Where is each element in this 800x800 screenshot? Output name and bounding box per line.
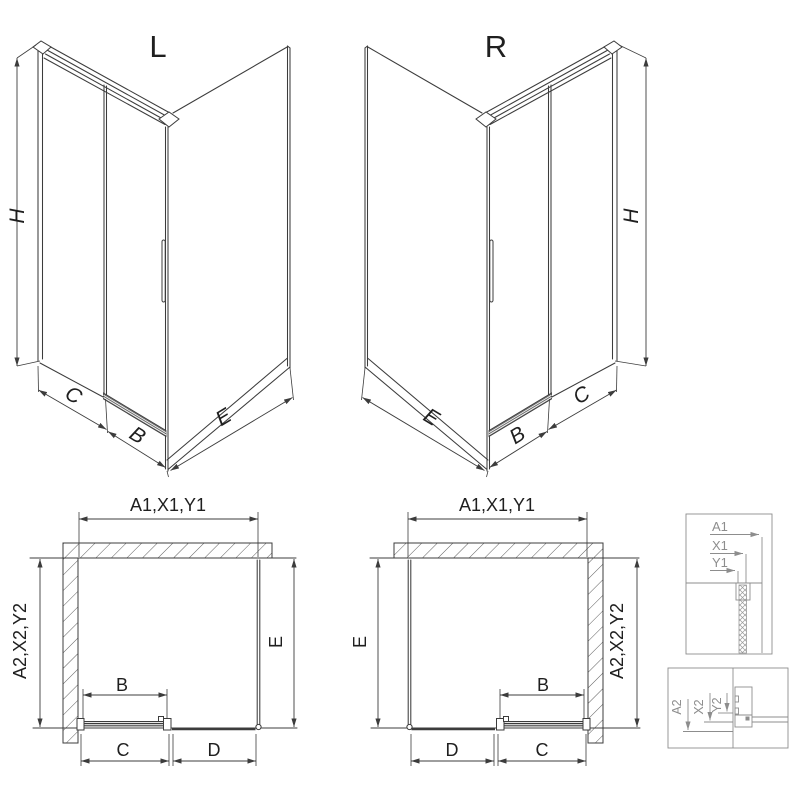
dim-label-b: B <box>537 675 549 695</box>
wall-side-edge <box>613 51 618 361</box>
door-handle <box>162 240 165 302</box>
dim-c-right: C <box>548 366 618 433</box>
dim-e-left: E <box>171 368 294 471</box>
wall-top <box>394 543 603 558</box>
dim-h-left: H <box>6 45 40 366</box>
profile-notch <box>735 696 739 702</box>
detail-box-bottom: A2 X2 Y2 <box>668 668 788 748</box>
glass-edge-section <box>739 585 747 653</box>
rail-end-cap <box>604 41 622 54</box>
detail-label-y2: Y2 <box>710 697 724 712</box>
dim-d: D <box>173 734 256 766</box>
dim-e-right: E <box>362 368 485 471</box>
dim-e-right-side: E <box>266 559 294 727</box>
dim-label-e: E <box>212 403 237 430</box>
roller-detail <box>746 717 750 721</box>
plan-view-right: A1,X1,Y1 E A2,X2,Y2 <box>350 495 640 766</box>
iso-view-left: L <box>6 29 294 477</box>
side-glass-panel <box>407 560 412 730</box>
plan-view-left: A1,X1,Y1 A2,X2,Y2 E <box>10 495 297 766</box>
corner-connector <box>256 724 261 729</box>
side-panel <box>365 46 488 470</box>
dim-label-a1x1y1: A1,X1,Y1 <box>130 495 206 515</box>
dim-label-b: B <box>116 675 128 695</box>
detail-label-a1: A1 <box>712 519 728 534</box>
wall-side-edge <box>38 51 43 361</box>
dim-label-c: C <box>536 740 549 760</box>
view-label-right: R <box>485 29 507 64</box>
dim-b: B <box>83 675 167 719</box>
wall-top <box>63 543 272 558</box>
detail-frame <box>668 668 788 748</box>
floor-profile-section <box>735 687 752 727</box>
corner-connector <box>407 724 412 729</box>
dim-a2-right: A2,X2,Y2 <box>607 559 637 727</box>
dim-label-a2x2y2: A2,X2,Y2 <box>10 603 30 679</box>
dim-label-a2x2y2: A2,X2,Y2 <box>607 603 627 679</box>
wall-left <box>63 558 78 743</box>
dim-label-e: E <box>350 636 370 648</box>
dim-c-left: C <box>38 366 108 433</box>
technical-drawing-page: L <box>0 0 800 800</box>
corner-post <box>166 127 169 471</box>
dim-b: B <box>500 675 584 719</box>
door-divider-edge <box>104 85 107 395</box>
detail-label-x2: X2 <box>692 699 706 714</box>
door-handle <box>490 240 493 302</box>
dim-label-h: H <box>620 208 643 224</box>
rail-end-cap <box>33 41 51 54</box>
dim-label-e: E <box>419 404 444 431</box>
dim-label-d: D <box>446 740 459 760</box>
shower-enclosure-diagram: L <box>0 0 800 800</box>
dim-label-a1x1y1: A1,X1,Y1 <box>459 495 535 515</box>
dim-c: C <box>498 734 586 766</box>
door-divider-edge <box>549 85 552 395</box>
side-glass-panel <box>256 560 261 730</box>
detail-frame <box>686 514 772 654</box>
profile-notch <box>735 708 739 714</box>
detail-box-top: A1 X1 Y1 <box>686 514 772 654</box>
corner-post <box>487 127 490 471</box>
detail-label-x1: X1 <box>712 538 728 553</box>
wall-right <box>588 558 603 743</box>
dim-label-e: E <box>266 636 286 648</box>
view-label-left: L <box>149 29 166 64</box>
dim-label-h: H <box>6 208 29 224</box>
dim-e-left-side: E <box>350 559 378 727</box>
dim-h-right: H <box>615 45 646 366</box>
dim-d: D <box>411 734 494 766</box>
dim-a2-left: A2,X2,Y2 <box>10 559 40 727</box>
dim-label-d: D <box>208 740 221 760</box>
dim-c: C <box>81 734 169 766</box>
detail-label-y1: Y1 <box>712 555 728 570</box>
iso-view-right: R <box>362 29 647 477</box>
detail-label-a2: A2 <box>670 699 684 714</box>
dim-label-c: C <box>117 740 130 760</box>
side-panel <box>167 46 290 470</box>
